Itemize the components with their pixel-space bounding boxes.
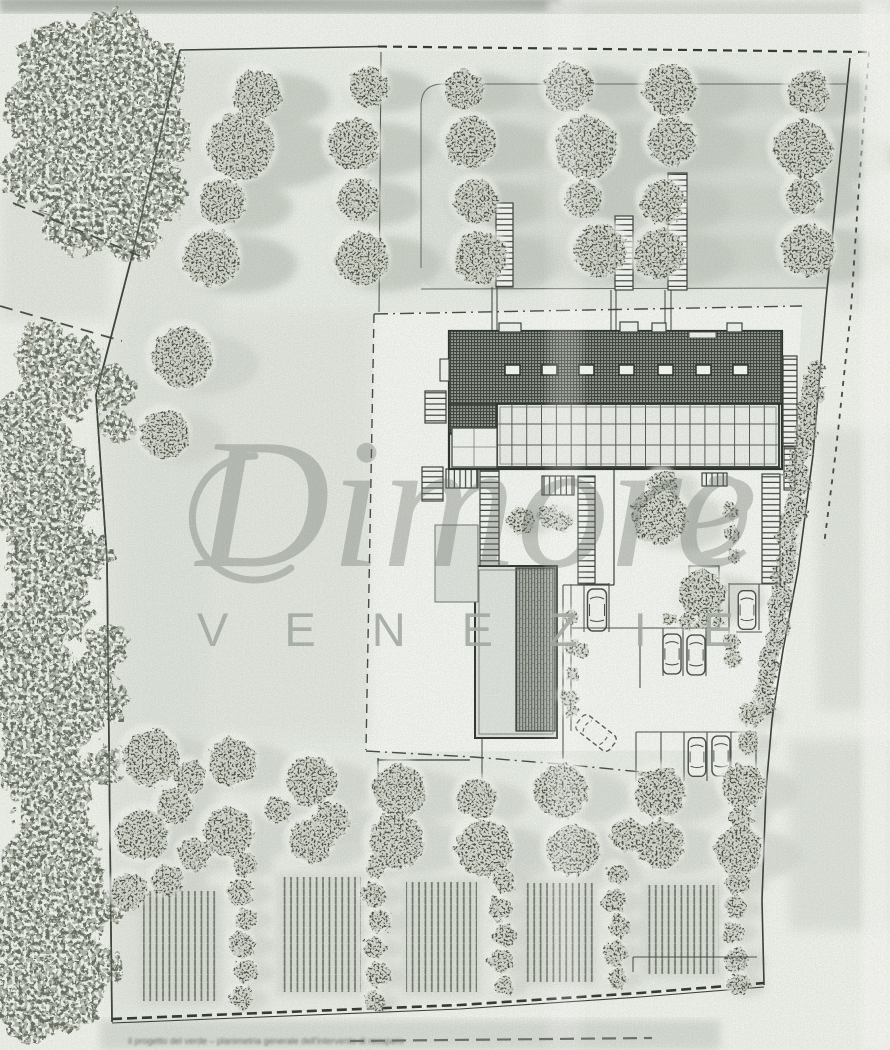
svg-text:il progetto del verde – planim: il progetto del verde – planimetria gene… bbox=[128, 1036, 404, 1046]
